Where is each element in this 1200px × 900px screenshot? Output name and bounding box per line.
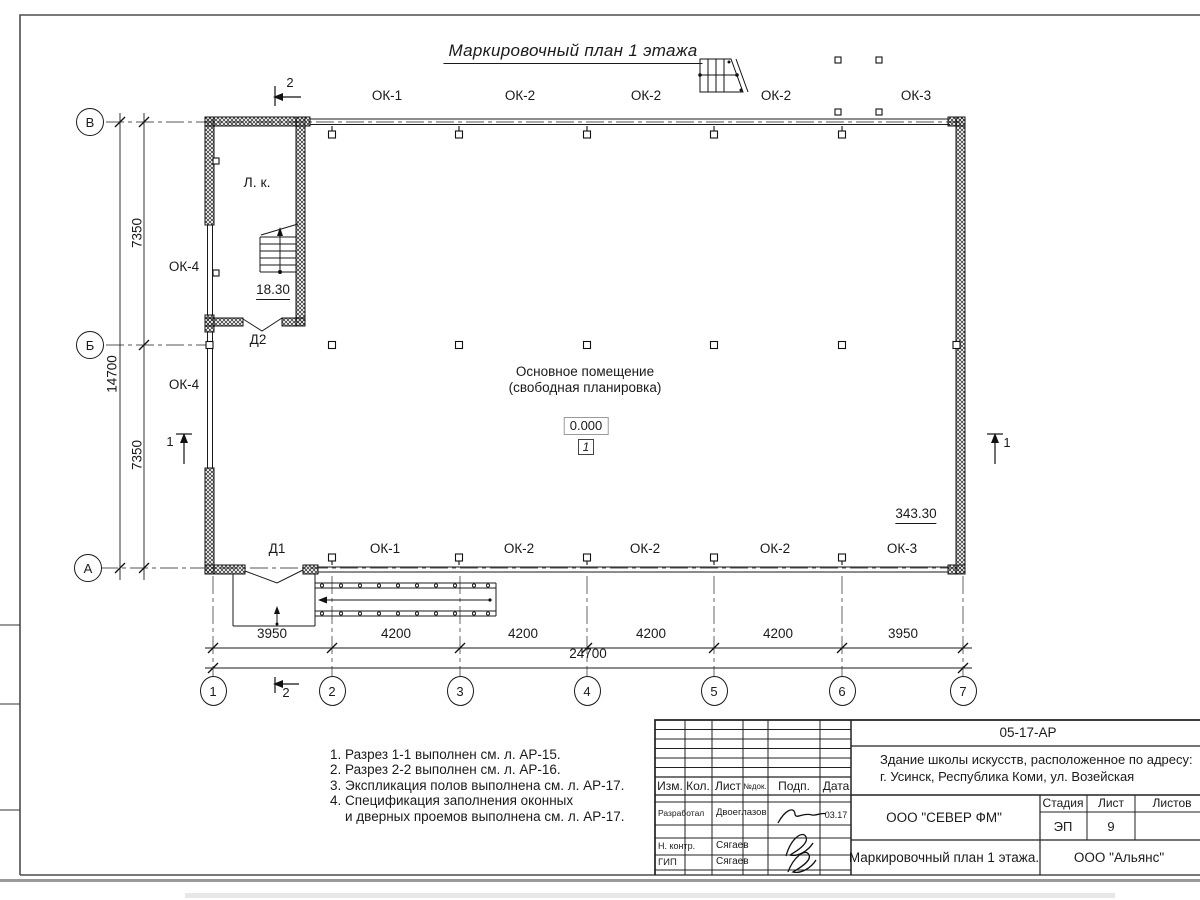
dim-bottom-total: 24700 bbox=[569, 647, 607, 662]
tb-header-data: Дата bbox=[823, 779, 850, 793]
stair-elevation: 18.30 bbox=[256, 283, 290, 300]
tb-role-gip: ГИП bbox=[658, 857, 677, 868]
cut-off-strip bbox=[185, 893, 1115, 898]
tb-header-ndoc: №док. bbox=[743, 782, 766, 791]
tb-header-kol: Кол. bbox=[686, 779, 710, 793]
ramp-direction-arrow bbox=[318, 597, 327, 604]
signatures bbox=[778, 810, 826, 873]
dim-bottom-2: 4200 bbox=[381, 627, 411, 642]
room-elevation: 0.000 bbox=[564, 417, 609, 435]
axis-circle-1: 1 bbox=[200, 676, 227, 706]
right-elevation: 343.30 bbox=[895, 507, 936, 524]
project-name-line2: г. Усинск, Республика Коми, ул. Возейска… bbox=[880, 769, 1134, 784]
tb-date-developer: 03.17 bbox=[825, 810, 848, 820]
window-label-bottom-2: ОК-2 bbox=[504, 542, 534, 557]
door-d2-opening bbox=[243, 318, 282, 331]
doc-number: 05-17-АР bbox=[999, 725, 1056, 740]
window-label-top-1: ОК-1 bbox=[372, 89, 402, 104]
tb-name-gip: Сягаев bbox=[716, 856, 749, 867]
window-label-bottom-5: ОК-3 bbox=[887, 542, 917, 557]
window-label-top-5: ОК-3 bbox=[901, 89, 931, 104]
note-line: и дверных проемов выполнена см. л. АР-17… bbox=[330, 809, 625, 824]
tb-sheet-value: 9 bbox=[1107, 819, 1114, 834]
axis-circle-a: А bbox=[74, 554, 102, 582]
dim-bottom-6: 3950 bbox=[888, 627, 918, 642]
axis-circle-v: В bbox=[76, 108, 104, 136]
drawing-notes: 1. Разрез 1-1 выполнен см. л. АР-15. 2. … bbox=[330, 747, 625, 824]
door-label-d1: Д1 bbox=[269, 542, 286, 557]
dim-left-bottom: 7350 bbox=[130, 440, 145, 470]
dim-bottom-4: 4200 bbox=[636, 627, 666, 642]
axis-circle-6: 6 bbox=[829, 676, 856, 706]
drawing-sheet: Маркировочный план 1 этажа ОК-1 ОК-2 ОК-… bbox=[0, 0, 1200, 900]
canopy-sketch bbox=[700, 59, 748, 92]
window-label-bottom-3: ОК-2 bbox=[630, 542, 660, 557]
tb-header-izm: Изм. bbox=[657, 779, 683, 793]
window-label-bottom-1: ОК-1 bbox=[370, 542, 400, 557]
window-label-ok4-bottom: ОК-4 bbox=[169, 378, 199, 393]
axis-circle-7: 7 bbox=[950, 676, 977, 706]
axis-circle-5: 5 bbox=[701, 676, 728, 706]
room-number: 1 bbox=[578, 439, 594, 455]
axis-circle-4: 4 bbox=[574, 676, 601, 706]
room-name-line1: Основное помещение bbox=[516, 365, 654, 380]
tb-name-ncontr: Сягаев bbox=[716, 840, 749, 851]
dim-bottom-1: 3950 bbox=[257, 627, 287, 642]
section-1-left-label: 1 bbox=[166, 435, 173, 449]
axis-circle-2: 2 bbox=[319, 676, 346, 706]
drawing-name: Маркировочный план 1 этажа. bbox=[849, 850, 1039, 865]
section-2-top-label: 2 bbox=[286, 76, 293, 90]
window-label-top-3: ОК-2 bbox=[631, 89, 661, 104]
tb-role-ncontr: Н. контр. bbox=[658, 841, 695, 851]
tb-header-list: Лист bbox=[715, 779, 741, 793]
tb-header-podp: Подп. bbox=[778, 779, 810, 793]
tb-stage-value: ЭП bbox=[1054, 819, 1073, 834]
dim-left-top: 7350 bbox=[130, 218, 145, 248]
door-d1-opening bbox=[245, 570, 303, 583]
window-label-bottom-4: ОК-2 bbox=[760, 542, 790, 557]
tb-stage-header: Стадия bbox=[1043, 796, 1084, 810]
tb-role-developer: Разработал bbox=[658, 808, 704, 818]
project-name-line1: Здание школы искусств, расположенное по … bbox=[880, 752, 1193, 767]
column-markers bbox=[206, 57, 960, 565]
dim-bottom-3: 4200 bbox=[508, 627, 538, 642]
note-line: 2. Разрез 2-2 выполнен см. л. АР-16. bbox=[330, 762, 625, 777]
dim-bottom-5: 4200 bbox=[763, 627, 793, 642]
axis-circle-3: 3 bbox=[447, 676, 474, 706]
stair-room-label: Л. к. bbox=[244, 175, 271, 190]
room-name-line2: (свободная планировка) bbox=[509, 381, 662, 396]
section-1-right-label: 1 bbox=[1003, 436, 1010, 450]
tb-sheets-header: Листов bbox=[1153, 796, 1192, 810]
tb-sheet-header: Лист bbox=[1098, 796, 1124, 810]
window-label-ok4-top: ОК-4 bbox=[169, 260, 199, 275]
org2-name: ООО "Альянс" bbox=[1074, 850, 1164, 865]
section-2-bottom-label: 2 bbox=[282, 686, 289, 700]
tb-name-developer: Двоеглазов bbox=[716, 807, 767, 818]
page-title: Маркировочный план 1 этажа bbox=[443, 42, 702, 64]
note-line: 1. Разрез 1-1 выполнен см. л. АР-15. bbox=[330, 747, 625, 762]
axis-circle-b: Б bbox=[76, 331, 104, 359]
org1-name: ООО "СЕВЕР ФМ" bbox=[886, 810, 1002, 825]
door-label-d2: Д2 bbox=[250, 333, 267, 348]
grid-axes bbox=[100, 122, 963, 677]
dim-left-total: 14700 bbox=[105, 355, 120, 393]
note-line: 3. Экспликация полов выполнена см. л. АР… bbox=[330, 778, 625, 793]
window-label-top-2: ОК-2 bbox=[505, 89, 535, 104]
note-line: 4. Спецификация заполнения оконных bbox=[330, 793, 625, 808]
window-label-top-4: ОК-2 bbox=[761, 89, 791, 104]
